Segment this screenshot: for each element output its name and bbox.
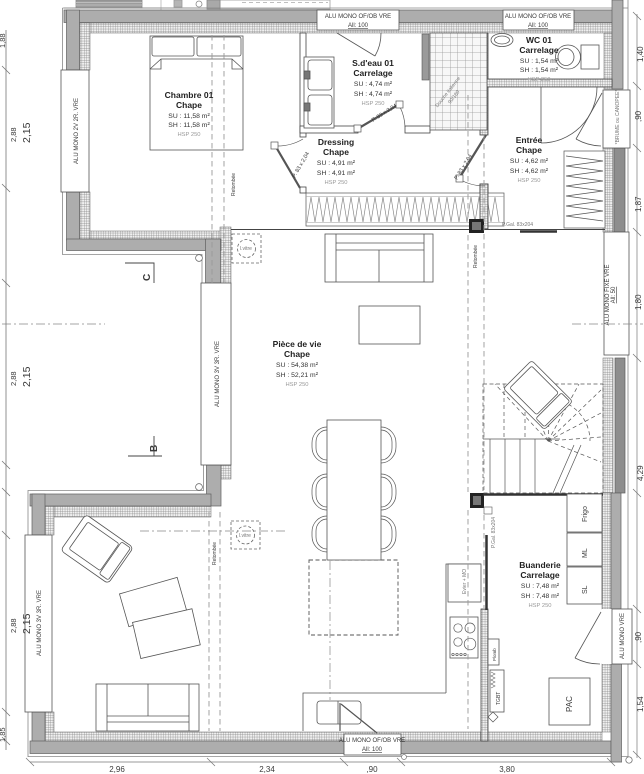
svg-text:SH : 4,74 m²: SH : 4,74 m² xyxy=(354,91,393,98)
svg-text:HSP 250: HSP 250 xyxy=(177,132,200,138)
svg-text:P.Gal. 83x204: P.Gal. 83x204 xyxy=(502,222,533,228)
svg-text:SH : 11,58 m²: SH : 11,58 m² xyxy=(168,122,210,129)
svg-text:ALU MONO 3V 3R. VRE: ALU MONO 3V 3R. VRE xyxy=(215,341,221,407)
svg-text:Retombée: Retombée xyxy=(231,173,237,196)
svg-text:ALU MONO OF/OB VRE: ALU MONO OF/OB VRE xyxy=(325,14,391,20)
svg-text:SH : 4,91 m²: SH : 4,91 m² xyxy=(317,170,356,177)
svg-text:TGBT: TGBT xyxy=(496,692,502,705)
svg-text:SU : 4,62 m²: SU : 4,62 m² xyxy=(510,158,549,165)
svg-text:4,29: 4,29 xyxy=(636,465,644,481)
svg-text:3,80: 3,80 xyxy=(499,765,515,774)
svg-text:WC 01: WC 01 xyxy=(526,35,552,45)
svg-text:Plomb: Plomb xyxy=(492,648,497,661)
svg-text:Carrelage: Carrelage xyxy=(520,570,559,580)
svg-text:SH : 52,21 m²: SH : 52,21 m² xyxy=(276,372,319,379)
svg-text:,90: ,90 xyxy=(634,110,643,122)
svg-text:SH : 7,48 m²: SH : 7,48 m² xyxy=(521,593,560,600)
svg-text:SU : 4,74 m²: SU : 4,74 m² xyxy=(354,81,393,88)
svg-text:2,88: 2,88 xyxy=(9,127,18,142)
svg-text:SH : 4,62 m²: SH : 4,62 m² xyxy=(510,168,549,175)
svg-text:Chape: Chape xyxy=(516,145,542,155)
svg-text:All: 50: All: 50 xyxy=(611,286,617,303)
svg-text:,90: ,90 xyxy=(634,631,643,643)
svg-text:Chambre 01: Chambre 01 xyxy=(165,90,214,100)
svg-text:1,54: 1,54 xyxy=(636,696,644,712)
svg-text:1,80: 1,80 xyxy=(634,294,643,310)
svg-text:1,87: 1,87 xyxy=(634,196,643,212)
svg-text:HSP 250: HSP 250 xyxy=(528,603,551,609)
svg-text:PAC: PAC xyxy=(565,696,574,712)
svg-text:,90: ,90 xyxy=(366,765,378,774)
svg-text:Chape: Chape xyxy=(176,100,202,110)
svg-text:1,88: 1,88 xyxy=(0,33,7,48)
svg-text:2,88: 2,88 xyxy=(9,371,18,386)
svg-text:2,15: 2,15 xyxy=(21,613,33,634)
svg-text:ALU MONO VRE: ALU MONO VRE xyxy=(620,613,626,659)
svg-text:Retombée: Retombée xyxy=(473,245,479,268)
svg-text:All: 100: All: 100 xyxy=(362,747,383,753)
svg-text:Entrée: Entrée xyxy=(516,135,543,145)
svg-text:SL: SL xyxy=(582,585,589,594)
svg-text:ALU MONO 2V 2R. VRE: ALU MONO 2V 2R. VRE xyxy=(74,98,80,164)
svg-text:SU : 11,58 m²: SU : 11,58 m² xyxy=(168,113,210,120)
svg-text:Pièce de vie: Pièce de vie xyxy=(273,339,322,349)
svg-text:Chape: Chape xyxy=(284,349,310,359)
svg-text:l.vitre: l.vitre xyxy=(240,246,252,252)
svg-text:1,85: 1,85 xyxy=(0,727,7,742)
svg-text:All: 100: All: 100 xyxy=(348,23,369,29)
svg-text:HSP 250: HSP 250 xyxy=(324,180,347,186)
svg-text:SU : 54,38 m²: SU : 54,38 m² xyxy=(276,362,319,369)
svg-text:SH : 1,54 m²: SH : 1,54 m² xyxy=(520,67,559,74)
svg-text:Chape: Chape xyxy=(323,147,349,157)
svg-text:Evier + MO: Evier + MO xyxy=(462,569,468,594)
svg-text:HSP 250: HSP 250 xyxy=(517,178,540,184)
svg-text:Retombée: Retombée xyxy=(212,542,218,565)
svg-text:ML: ML xyxy=(582,548,589,558)
svg-text:2,15: 2,15 xyxy=(21,122,33,143)
svg-text:2,34: 2,34 xyxy=(259,765,275,774)
svg-text:Carrelage: Carrelage xyxy=(353,68,392,78)
svg-text:C: C xyxy=(142,274,153,281)
svg-text:2,96: 2,96 xyxy=(109,765,125,774)
svg-text:HSP 250: HSP 250 xyxy=(527,77,550,83)
svg-text:SU : 4,91 m²: SU : 4,91 m² xyxy=(317,160,356,167)
svg-text:1,40: 1,40 xyxy=(636,46,644,62)
svg-text:HSP 250: HSP 250 xyxy=(361,101,384,107)
svg-text:SU : 7,48 m²: SU : 7,48 m² xyxy=(521,583,560,590)
svg-text:P.Gal. 83x204: P.Gal. 83x204 xyxy=(491,517,497,548)
svg-text:2,88: 2,88 xyxy=(9,618,18,633)
svg-text:*BRUME ou CANOPEE*: *BRUME ou CANOPEE* xyxy=(615,90,621,145)
svg-text:2,15: 2,15 xyxy=(21,366,33,387)
svg-text:HSP 250: HSP 250 xyxy=(285,382,308,388)
svg-text:ALU MONO 3V 3R. VRE: ALU MONO 3V 3R. VRE xyxy=(37,590,43,656)
svg-text:B: B xyxy=(149,445,160,452)
svg-text:Carrelage: Carrelage xyxy=(519,45,558,55)
svg-text:ALU MONO OF/OB VRE: ALU MONO OF/OB VRE xyxy=(505,14,571,20)
svg-text:All: 100: All: 100 xyxy=(528,23,549,29)
svg-text:ALU MONO OF/OB VRE: ALU MONO OF/OB VRE xyxy=(339,738,405,744)
svg-text:Dressing: Dressing xyxy=(318,137,354,147)
svg-text:SU : 1,54 m²: SU : 1,54 m² xyxy=(520,58,559,65)
svg-text:Frigo: Frigo xyxy=(582,506,589,522)
svg-text:Buanderie: Buanderie xyxy=(519,560,561,570)
svg-text:S.d'eau 01: S.d'eau 01 xyxy=(352,58,394,68)
svg-text:l.vitre: l.vitre xyxy=(239,533,251,539)
